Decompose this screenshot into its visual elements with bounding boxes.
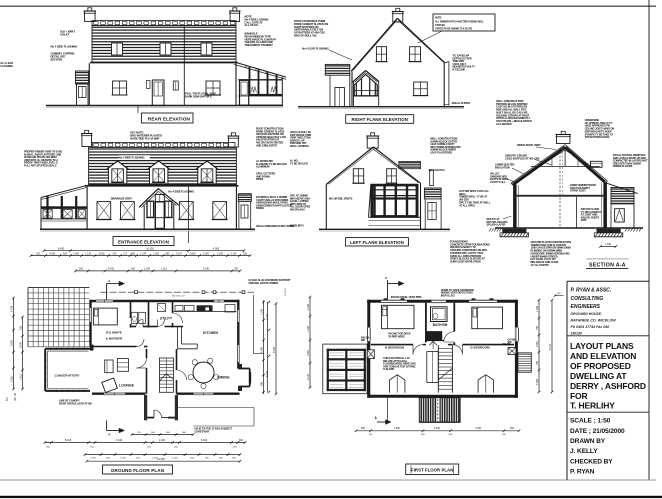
svg-text:5.240: 5.240 [10, 339, 13, 346]
svg-text:TI SLOPE: TI SLOPE [383, 367, 394, 371]
svg-text:1.498: 1.498 [605, 243, 612, 246]
svg-text:1.300: 1.300 [307, 325, 310, 332]
svg-text:2.400: 2.400 [159, 439, 166, 442]
svg-text:4.905: 4.905 [213, 247, 220, 250]
svg-text:SPLASH LAYER: SPLASH LAYER [487, 223, 506, 227]
svg-text:No 4 LEAD FLASHING: No 4 LEAD FLASHING [302, 47, 329, 51]
svg-text:P. RYAN: P. RYAN [570, 469, 595, 476]
svg-text:ENGINEERS: ENGINEERS [571, 304, 601, 310]
svg-text:4.800: 4.800 [394, 427, 401, 430]
svg-text:5.240: 5.240 [203, 268, 210, 271]
svg-text:9.736: 9.736 [273, 346, 276, 353]
svg-text:No 4 LEAD FL: No 4 LEAD FL [429, 168, 446, 172]
svg-text:900: 900 [131, 252, 136, 255]
svg-text:1.075: 1.075 [90, 457, 96, 459]
svg-text:FOR: FOR [570, 391, 588, 401]
svg-text:B BEDROOM: B BEDROOM [470, 345, 490, 349]
svg-text:3.000: 3.000 [260, 346, 263, 353]
svg-text:1.300: 1.300 [217, 252, 224, 255]
svg-text:3.000: 3.000 [99, 252, 106, 255]
svg-text:DRAINAGE VENT: DRAINAGE VENT [111, 197, 133, 201]
svg-text:A BLKT: A BLKT [60, 32, 70, 36]
svg-text:2.207: 2.207 [176, 252, 183, 255]
svg-text:FULL ARY STUFFED SEALS: FULL ARY STUFFED SEALS [24, 164, 57, 168]
svg-text:230: 230 [36, 252, 41, 255]
svg-text:INSTALLED: INSTALLED [441, 293, 455, 297]
svg-text:CONSULTING: CONSULTING [571, 296, 604, 302]
svg-text:LAYOUT PLANS: LAYOUT PLANS [570, 341, 634, 351]
svg-text:RIGHT FLANK ELEVATION: RIGHT FLANK ELEVATION [351, 117, 408, 122]
svg-text:STRAP JOIST: STRAP JOIST [570, 189, 586, 193]
svg-text:AND DBL JOISTS UNDER: AND DBL JOISTS UNDER [248, 281, 278, 285]
svg-text:DERRY , ASHFORD: DERRY , ASHFORD [570, 381, 646, 391]
svg-text:COLD BAFFLES AT 600 CRS: COLD BAFFLES AT 600 CRS [505, 156, 540, 160]
svg-text:AT ALL POINTS: AT ALL POINTS [531, 263, 549, 267]
svg-text:DWELLING AT: DWELLING AT [570, 371, 627, 381]
svg-text:WD: WD [361, 339, 365, 342]
svg-text:1.300: 1.300 [260, 308, 263, 315]
svg-text:TY BE SEALED: TY BE SEALED [290, 161, 308, 165]
svg-text:DRAWN BY: DRAWN BY [570, 438, 606, 445]
svg-text:1.304: 1.304 [144, 268, 151, 271]
svg-text:P. RYAN & ASSC.: P. RYAN & ASSC. [571, 287, 612, 293]
svg-text:SCALE ; 1:50: SCALE ; 1:50 [570, 418, 611, 425]
svg-text:No 4 SIDE FLASHING: No 4 SIDE FLASHING [119, 156, 145, 160]
svg-text:WALL COPINGS: WALL COPINGS [290, 144, 309, 148]
svg-text:DPM: DPM [581, 218, 586, 222]
svg-text:BATH RM: BATH RM [433, 323, 448, 327]
svg-text:SIA OR DBL VENTS: SIA OR DBL VENTS [329, 196, 353, 200]
svg-text:5.240: 5.240 [266, 370, 269, 377]
svg-text:ORCHARD HOUSE,: ORCHARD HOUSE, [571, 312, 602, 316]
svg-text:600 PLINTH: 600 PLINTH [290, 223, 304, 227]
svg-text:71.88: 71.88 [475, 427, 482, 430]
svg-text:2.134: 2.134 [307, 373, 310, 380]
svg-text:(20) 761: (20) 761 [15, 392, 17, 401]
svg-text:BARK TIDE PLS 34 BNP: BARK TIDE PLS 34 BNP [130, 136, 159, 140]
svg-text:1.219: 1.219 [85, 252, 92, 255]
svg-text:700: 700 [234, 268, 239, 271]
svg-text:RIDGE ROOF VENT: RIDGE ROOF VENT [517, 143, 541, 147]
svg-text:T. HERLIHY: T. HERLIHY [570, 401, 615, 411]
svg-text:3.051: 3.051 [10, 375, 13, 382]
svg-text:5.415: 5.415 [65, 439, 72, 442]
svg-text:BRG OF ROLL VAL: BRG OF ROLL VAL [294, 34, 317, 38]
svg-text:200: 200 [19, 325, 22, 330]
svg-text:FLASHING: FLASHING [1, 64, 14, 68]
svg-text:200: 200 [79, 268, 84, 271]
svg-text:ROOF OVER & LIGHT AT 2M: ROOF OVER & LIGHT AT 2M [59, 401, 92, 405]
svg-text:FINISH: FINISH [256, 206, 264, 210]
svg-text:14.355: 14.355 [157, 458, 165, 461]
svg-text:DINING: DINING [217, 376, 230, 380]
svg-text:1.300: 1.300 [153, 252, 160, 255]
svg-text:AT ALL OPES: AT ALL OPES [459, 203, 475, 207]
svg-text:1.300: 1.300 [536, 305, 539, 312]
svg-text:605 605 1.07: 605 605 1.07 [172, 296, 186, 298]
svg-text:2.134: 2.134 [140, 252, 147, 255]
svg-text:B'S WHITE: B'S WHITE [106, 331, 122, 335]
svg-text:BARK SEMI SVP HA 3: BARK SEMI SVP HA 3 [185, 94, 212, 98]
svg-text:4.440: 4.440 [116, 439, 123, 442]
svg-text:600 DIA STEEL VENT PIPE: 600 DIA STEEL VENT PIPE [391, 295, 422, 299]
svg-text:230130: 230130 [570, 331, 582, 335]
svg-text:3.200: 3.200 [203, 252, 210, 255]
svg-text:2.300: 2.300 [307, 303, 310, 310]
svg-text:Ph 0404 17743 Fax 040: Ph 0404 17743 Fax 040 [571, 325, 610, 329]
svg-text:KITCHEN: KITCHEN [203, 331, 218, 335]
svg-text:RATHNEW, CO. WICKLOW: RATHNEW, CO. WICKLOW [571, 318, 617, 322]
svg-text:ST 10 4: ST 10 4 [285, 288, 287, 296]
svg-text:500: 500 [361, 427, 366, 430]
svg-text:9.144: 9.144 [549, 343, 552, 350]
svg-text:5.301: 5.301 [201, 439, 208, 442]
svg-text:1.611: 1.611 [161, 268, 167, 271]
svg-text:400mm PLINTH: 400mm PLINTH [451, 101, 470, 105]
svg-text:B BEDROOM: B BEDROOM [385, 345, 405, 349]
svg-text:2.134: 2.134 [231, 252, 238, 255]
svg-text:5.420: 5.420 [108, 268, 115, 271]
svg-text:1.075: 1.075 [120, 457, 126, 459]
svg-text:GROUND FLOOR PLAN: GROUND FLOOR PLAN [111, 468, 165, 473]
svg-text:UTILITY: UTILITY [160, 316, 173, 320]
svg-text:TREATMENT STANDBY: TREATMENT STANDBY [245, 43, 274, 47]
svg-text:No 4 SIDE FLASHING: No 4 SIDE FLASHING [168, 190, 194, 194]
svg-text:AND CRIB SOFFIT: AND CRIB SOFFIT [256, 143, 278, 147]
svg-text:600 SPLASH: 600 SPLASH [290, 208, 305, 212]
svg-text:16.292: 16.292 [146, 247, 154, 250]
svg-text:900: 900 [260, 381, 263, 386]
svg-text:TA PIPE HERE: TA PIPE HERE [388, 334, 405, 338]
svg-text:500: 500 [510, 427, 515, 430]
svg-text:DATE ; 21/05/2000: DATE ; 21/05/2000 [570, 428, 625, 435]
svg-text:300: 300 [239, 439, 244, 442]
svg-text:INSULATION: INSULATION [495, 165, 510, 169]
svg-text:CAVITY FULL: CAVITY FULL [490, 180, 506, 184]
svg-text:CONSERVATORY: CONSERVATORY [54, 374, 79, 378]
svg-text:& BORDER: & BORDER [106, 337, 123, 341]
svg-text:2.134: 2.134 [266, 313, 269, 320]
svg-text:ENTRANCE ELEVATION: ENTRANCE ELEVATION [118, 240, 169, 245]
svg-text:750: 750 [536, 360, 539, 365]
svg-text:CLG WHITED: CLG WHITED [496, 122, 512, 126]
svg-text:1.075: 1.075 [172, 457, 178, 459]
svg-text:LOUNGE: LOUNGE [119, 384, 135, 388]
svg-text:1.300: 1.300 [73, 252, 80, 255]
svg-text:3.051: 3.051 [536, 340, 539, 347]
svg-text:OF PROPOSED: OF PROPOSED [570, 361, 631, 371]
svg-text:SECTION A-A: SECTION A-A [589, 263, 626, 269]
svg-text:2.300: 2.300 [536, 378, 539, 385]
svg-text:200: 200 [113, 252, 118, 255]
svg-text:750: 750 [536, 325, 539, 330]
svg-text:IF EZCZNE: IF EZCZNE [453, 68, 466, 72]
svg-text:925: 925 [243, 252, 248, 255]
svg-text:No 4 SIDE FLASHING: No 4 SIDE FLASHING [51, 45, 79, 49]
svg-text:ALL SP GG: ALL SP GG [245, 23, 259, 27]
svg-text:J. KELLY: J. KELLY [570, 448, 598, 455]
svg-text:625: 625 [63, 252, 68, 255]
svg-text:5.220: 5.220 [434, 427, 441, 430]
svg-text:AND ELEVATION: AND ELEVATION [570, 351, 636, 361]
svg-text:1.611: 1.611 [19, 374, 22, 380]
svg-text:ALUMINUM: ALUMINUM [256, 165, 269, 169]
svg-text:5.420: 5.420 [19, 341, 22, 348]
svg-text:1.800: 1.800 [190, 252, 197, 255]
svg-text:UNDER FLOORS: UNDER FLOORS [613, 164, 633, 168]
svg-text:200: 200 [131, 268, 136, 271]
svg-text:CURET WHT: CURET WHT [195, 429, 210, 433]
svg-text:STATED TO BE HAVING 75 X 35 CR: STATED TO BE HAVING 75 X 35 CRS [435, 27, 473, 30]
svg-text:WD: WD [508, 341, 512, 344]
svg-text:STAPLES: STAPLES [435, 24, 445, 27]
svg-text:SUBFLOOR VENTILATION: SUBFLOOR VENTILATION [450, 260, 481, 264]
svg-text:4.776: 4.776 [10, 305, 13, 312]
svg-text:8.600: 8.600 [58, 247, 65, 250]
svg-text:REAR ELEVATION: REAR ELEVATION [148, 117, 191, 122]
svg-text:FIRST FLOOR PLAN: FIRST FLOOR PLAN [411, 467, 453, 472]
svg-text:3.051: 3.051 [50, 252, 57, 255]
svg-text:3.051: 3.051 [307, 349, 310, 356]
svg-text:717: 717 [123, 252, 128, 255]
svg-text:LEAF PLASTERED: LEAF PLASTERED [430, 151, 452, 155]
svg-text:NOTE:: NOTE: [435, 18, 442, 20]
svg-text:LEFT FLANK ELEVATION: LEFT FLANK ELEVATION [350, 240, 404, 245]
svg-text:SECTION: SECTION [51, 57, 62, 61]
svg-text:900: 900 [166, 252, 171, 255]
svg-text:TOP BUTTERS EDGE: TOP BUTTERS EDGE [585, 135, 610, 139]
svg-text:ALL TIMBER RAFTS HAVE TREAT BE: ALL TIMBER RAFTS HAVE TREAT BEING WELL [435, 20, 484, 23]
svg-text:CHECKED BY: CHECKED BY [570, 458, 613, 465]
svg-text:PIPES: PIPES [256, 177, 264, 181]
